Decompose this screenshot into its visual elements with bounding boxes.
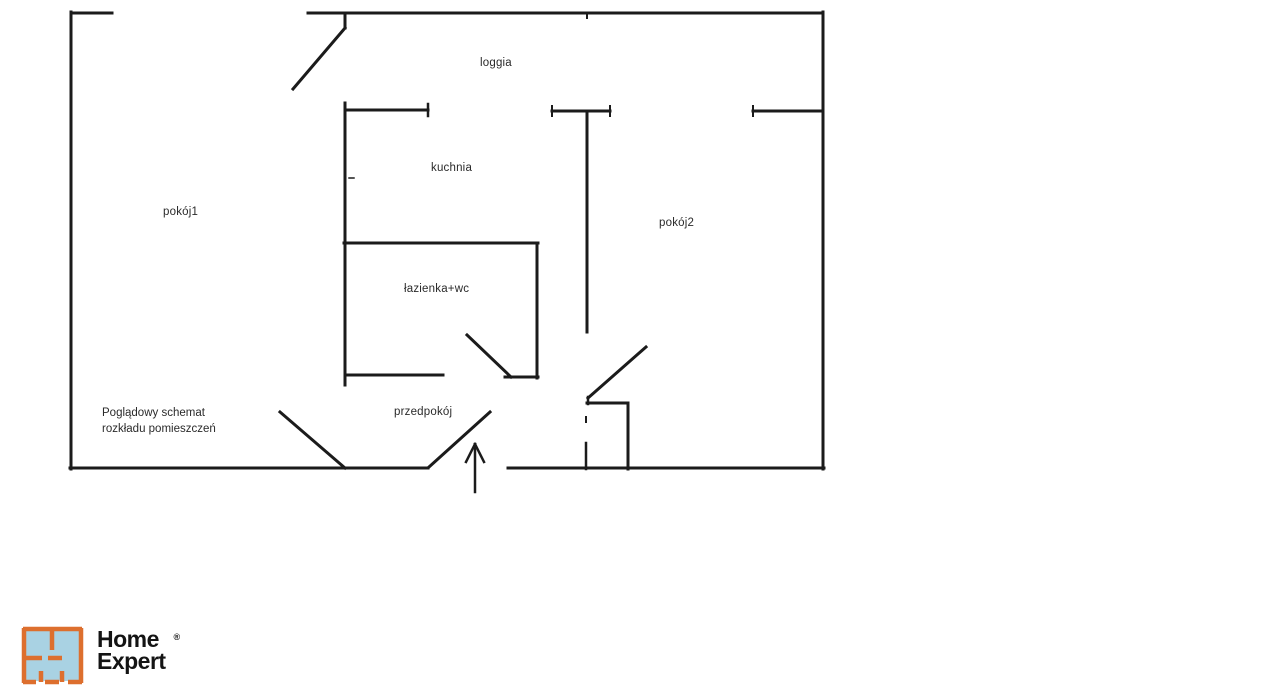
registered-trademark-mark: ® (173, 627, 179, 649)
logo-wordmark: Home Expert ® (97, 629, 166, 672)
room-label-pokoj2: pokój2 (659, 217, 694, 229)
floorplan-svg (0, 0, 1280, 691)
floorplan-icon (21, 626, 84, 685)
floorplan-page: loggia kuchnia pokój1 pokój2 łazienka+wc… (0, 0, 1280, 691)
loggia-door-swing (293, 28, 345, 89)
lazienka-door-swing (467, 335, 511, 377)
home-expert-logo: Home Expert ® (21, 626, 166, 685)
room-label-loggia: loggia (480, 57, 512, 69)
entrance-door-swing (429, 412, 490, 467)
room-label-pokoj1: pokój1 (163, 206, 198, 218)
pokoj1-door-swing (280, 412, 345, 468)
room-label-kuchnia: kuchnia (431, 162, 472, 174)
logo-word-expert: Expert (97, 651, 166, 673)
room-label-lazienka-wc: łazienka+wc (404, 283, 469, 295)
room-label-przedpokoj: przedpokój (394, 406, 452, 418)
plan-caption: Poglądowy schemat rozkładu pomieszczeń (102, 406, 216, 437)
arrow-head-right (475, 444, 484, 462)
plan-caption-line2: rozkładu pomieszczeń (102, 422, 216, 438)
arrow-head-left (466, 444, 475, 462)
plan-caption-line1: Poglądowy schemat (102, 406, 216, 422)
pokoj2-door-swing (588, 347, 646, 398)
